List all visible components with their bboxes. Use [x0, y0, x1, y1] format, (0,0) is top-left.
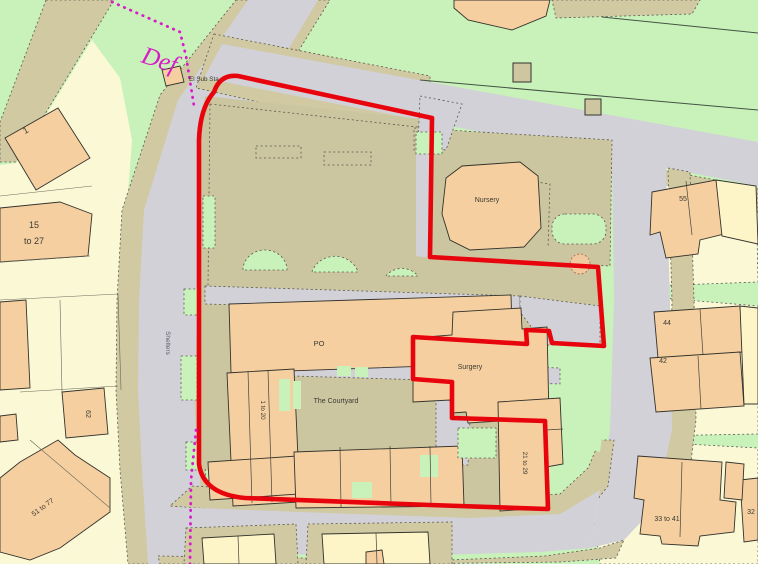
- houses-15-27-building: [0, 202, 92, 262]
- label-house-55: 55: [679, 196, 687, 203]
- shed-structure: [513, 63, 531, 82]
- label-flats-1-20: 1 to 20: [259, 400, 266, 420]
- grass-bed-courtyard: [355, 367, 368, 377]
- grass-bed-courtyard: [420, 455, 438, 477]
- label-nursery: Nursery: [475, 197, 500, 204]
- grass-strip-verge: [181, 356, 197, 400]
- house-west-block: [0, 300, 30, 390]
- label-flats-21-29: 21 to 29: [521, 452, 528, 475]
- label-house-44: 44: [663, 320, 671, 327]
- label-the-courtyard: The Courtyard: [314, 398, 359, 405]
- label-15: 15: [29, 220, 39, 230]
- map-canvas: Def El Sub Sta Nursery PO Surgery The Co…: [0, 0, 758, 564]
- grass-square-south: [458, 428, 496, 458]
- grass-bed-courtyard: [352, 482, 372, 498]
- house-44-building: [654, 306, 744, 358]
- label-house-42: 42: [659, 358, 667, 365]
- grass-strip-verge: [186, 442, 198, 470]
- label-houses-33-41: 33 to 41: [654, 516, 679, 523]
- house-small-west: [0, 414, 18, 442]
- grass-bed-courtyard: [279, 379, 290, 411]
- label-house-62: 62: [84, 410, 91, 418]
- grass-bed-courtyard: [337, 366, 351, 376]
- grass-strip-site-west: [203, 196, 215, 248]
- label-el-sub-sta: El Sub Sta: [189, 76, 219, 83]
- building-bottom-stub: [366, 550, 384, 564]
- site-plan-map: Def El Sub Sta Nursery PO Surgery The Co…: [0, 0, 758, 564]
- grass-bed-courtyard: [293, 381, 301, 409]
- nursery-building: [442, 162, 541, 250]
- label-surgery: Surgery: [458, 364, 483, 371]
- house-33-41-annex: [724, 462, 744, 500]
- house-55-pale-wing: [716, 180, 758, 244]
- houses-33-41-building: [634, 456, 736, 546]
- label-po: PO: [314, 339, 325, 348]
- grass-bed-nursery: [416, 132, 442, 154]
- grass-bed-nursery-east: [552, 214, 606, 244]
- grass-strip-verge: [184, 289, 198, 315]
- label-house-32: 32: [747, 509, 755, 516]
- label-to-27: to 27: [24, 236, 44, 246]
- label-shelters: Shelters: [164, 331, 171, 356]
- shed-structure: [585, 99, 601, 115]
